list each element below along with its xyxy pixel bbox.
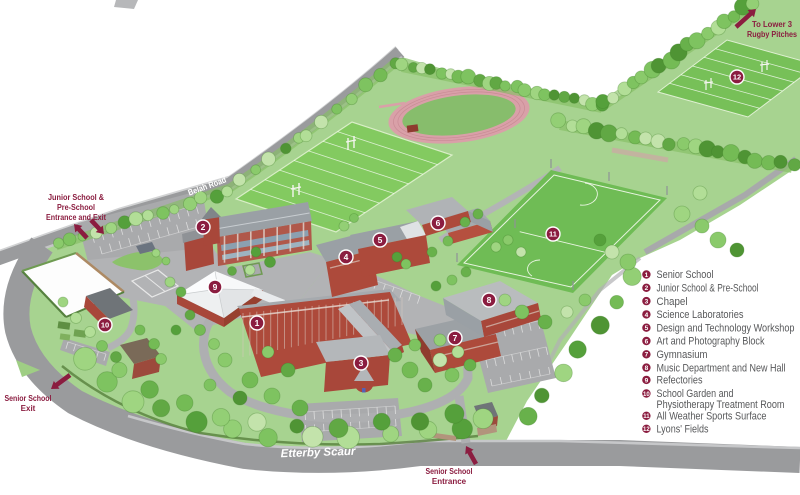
svg-text:Senior School: Senior School — [657, 269, 714, 281]
svg-text:To Lower 3: To Lower 3 — [752, 20, 793, 29]
svg-text:12: 12 — [643, 427, 650, 433]
svg-text:9: 9 — [213, 282, 218, 292]
svg-text:10: 10 — [101, 321, 109, 330]
svg-text:11: 11 — [643, 414, 650, 420]
svg-text:Refectories: Refectories — [657, 375, 704, 387]
svg-text:10: 10 — [643, 392, 650, 398]
svg-text:6: 6 — [645, 338, 649, 345]
svg-text:Pre-School: Pre-School — [57, 203, 95, 212]
svg-text:4: 4 — [344, 252, 349, 262]
svg-text:Lyons' Fields: Lyons' Fields — [657, 424, 709, 436]
svg-text:Science Laboratories: Science Laboratories — [657, 309, 745, 321]
svg-text:Art and Photography Block: Art and Photography Block — [657, 336, 765, 348]
svg-text:12: 12 — [733, 73, 741, 82]
svg-text:8: 8 — [645, 365, 649, 372]
svg-text:Entrance and Exit: Entrance and Exit — [46, 213, 106, 222]
svg-text:8: 8 — [487, 295, 492, 305]
svg-text:Junior School &: Junior School & — [48, 193, 104, 202]
svg-text:Music Department and New Hall: Music Department and New Hall — [657, 362, 786, 374]
svg-text:Senior School: Senior School — [5, 394, 52, 403]
svg-text:Design and Technology Workshop: Design and Technology Workshop — [657, 322, 795, 334]
svg-text:2: 2 — [645, 285, 649, 292]
svg-text:5: 5 — [378, 235, 383, 245]
svg-text:Gymnasium: Gymnasium — [657, 349, 708, 361]
svg-text:9: 9 — [645, 377, 649, 384]
svg-text:4: 4 — [645, 312, 649, 319]
svg-text:Physiotherapy Treatment Room: Physiotherapy Treatment Room — [657, 399, 785, 411]
svg-text:Chapel: Chapel — [657, 296, 688, 308]
svg-text:2: 2 — [201, 222, 206, 232]
svg-text:Exit: Exit — [21, 404, 36, 413]
svg-text:11: 11 — [549, 230, 557, 239]
svg-text:7: 7 — [453, 333, 458, 343]
svg-text:All Weather Sports Surface: All Weather Sports Surface — [657, 411, 767, 423]
svg-text:Junior School & Pre-School: Junior School & Pre-School — [657, 283, 759, 295]
svg-text:1: 1 — [645, 272, 649, 279]
svg-text:Entrance: Entrance — [432, 477, 467, 486]
svg-text:Senior School: Senior School — [426, 467, 473, 476]
svg-text:Rugby Pitches: Rugby Pitches — [747, 30, 797, 39]
svg-text:6: 6 — [436, 218, 441, 228]
svg-text:1: 1 — [255, 318, 260, 328]
svg-text:5: 5 — [645, 325, 649, 332]
svg-text:7: 7 — [645, 352, 649, 359]
svg-text:3: 3 — [359, 358, 364, 368]
svg-text:3: 3 — [645, 299, 649, 306]
